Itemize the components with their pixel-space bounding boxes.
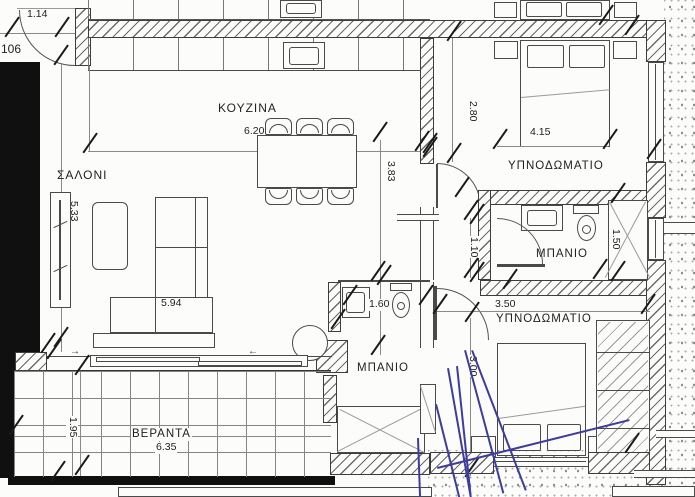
- room-label-bedroom1: ΥΠΝΟΔΩΜΑΤΙΟ: [508, 160, 604, 173]
- toilet-drain: [397, 302, 405, 310]
- wardrobe-hatch: [598, 322, 648, 456]
- nightstand: [494, 41, 518, 59]
- dimension-line: [80, 372, 81, 476]
- neighbor-counter: [88, 0, 430, 20]
- dim-bath2-width: 1.60: [368, 299, 390, 311]
- dim-sofa-length: 5.94: [160, 298, 182, 310]
- dimension-line: [380, 140, 381, 355]
- black-wall: [0, 62, 40, 352]
- dim-bedroom1-width: 4.15: [529, 127, 551, 139]
- sliding-door-panel: [198, 361, 302, 366]
- room-label-bath1: ΜΠΑΝΙΟ: [536, 248, 588, 261]
- balcony-divider: [664, 222, 695, 234]
- kitchen-counter: [88, 38, 430, 71]
- unit-number: 106: [0, 43, 22, 56]
- room-label-living: ΣΑΛΟΝΙ: [57, 169, 108, 182]
- dimension-tick: [446, 143, 461, 164]
- nightstand: [613, 41, 637, 59]
- black-wall: [0, 352, 15, 478]
- sofa-seam: [155, 297, 156, 333]
- stipple-texture: [664, 0, 695, 497]
- dimension-line: [437, 311, 650, 312]
- dining-table: [257, 135, 357, 188]
- kitchen-sink-basin: [289, 47, 319, 65]
- radiator-fin: [59, 200, 61, 300]
- nightstand: [494, 2, 517, 18]
- sofa-bench: [93, 333, 215, 348]
- toilet-tank: [573, 205, 599, 214]
- toilet-tank: [390, 283, 412, 291]
- slide-arrow-left-icon: ←: [248, 347, 258, 357]
- sofa-seam: [155, 247, 208, 248]
- dining-chair: [296, 188, 323, 205]
- dining-chair: [296, 118, 323, 135]
- exterior-step: [634, 470, 695, 478]
- dim-bedroom1-depth: 2.80: [466, 100, 478, 122]
- dimension-line: [497, 146, 608, 147]
- dimension-tick: [4, 17, 19, 38]
- nightstand: [614, 2, 637, 18]
- wall-hatch: [15, 352, 47, 371]
- entry-threshold: [17, 8, 75, 9]
- window-pane: [496, 461, 586, 462]
- dim-hall-depth: 3.83: [384, 160, 396, 182]
- wall-hatch: [646, 162, 666, 218]
- toilet-drain: [582, 225, 591, 234]
- slide-arrow-right-icon: →: [70, 347, 80, 357]
- dim-veranda-depth: 1.95: [66, 416, 78, 438]
- veranda-edge-wall: [8, 476, 335, 485]
- dimension-tick: [463, 258, 478, 279]
- pillow: [527, 45, 564, 68]
- sliding-door-panel: [96, 357, 200, 362]
- dim-corridor-width: 1.10: [467, 236, 479, 258]
- dimension-tick: [370, 335, 385, 356]
- pillow: [569, 45, 605, 68]
- planter: [612, 486, 695, 497]
- room-label-bath2: ΜΠΑΝΙΟ: [357, 362, 409, 375]
- wardrobe-shelf: [596, 390, 650, 391]
- pillow: [526, 2, 562, 17]
- wall-line: [306, 356, 332, 357]
- washbasin-bowl: [527, 210, 557, 226]
- wardrobe-shelf: [596, 352, 650, 353]
- coffee-table: [92, 202, 128, 270]
- room-label-kitchen: ΚΟΥΖΙΝΑ: [218, 102, 277, 115]
- party-wall-hatch: [88, 20, 648, 38]
- planter: [118, 487, 432, 497]
- dimension-tick: [370, 261, 385, 282]
- wall-line: [338, 280, 430, 282]
- veranda-tile-grid: [14, 370, 331, 477]
- floor-plan: 1.14 106 ΣΑΛΟΝΙ 5.33 5.94 ΚΟΥΖΙΝΑ 6.20 3…: [0, 0, 695, 497]
- room-label-veranda: ΒΕΡΑΝΤΑ: [131, 428, 192, 441]
- sofa-seam: [195, 197, 196, 297]
- window-pane: [655, 220, 656, 258]
- dimension-line: [452, 38, 453, 162]
- wall-hatch: [330, 453, 430, 475]
- dining-chair: [327, 188, 354, 205]
- wardrobe-shelf: [596, 428, 650, 429]
- door-leaf: [497, 264, 545, 267]
- dim-veranda-width: 6.35: [155, 442, 177, 454]
- pillow: [566, 2, 602, 17]
- wall-stub: [397, 214, 439, 221]
- dining-chair: [327, 118, 354, 135]
- wall-hatch: [646, 20, 666, 62]
- exterior-step: [656, 430, 695, 438]
- dimension-line: [89, 66, 90, 152]
- neighbor-sink-basin: [286, 3, 316, 14]
- room-label-bedroom2: ΥΠΝΟΔΩΜΑΤΙΟ: [496, 313, 592, 326]
- dining-chair: [265, 188, 292, 205]
- dim-bedroom2-width: 3.50: [494, 299, 516, 311]
- dining-chair: [265, 118, 292, 135]
- dim-shower-height: 1.50: [609, 228, 621, 250]
